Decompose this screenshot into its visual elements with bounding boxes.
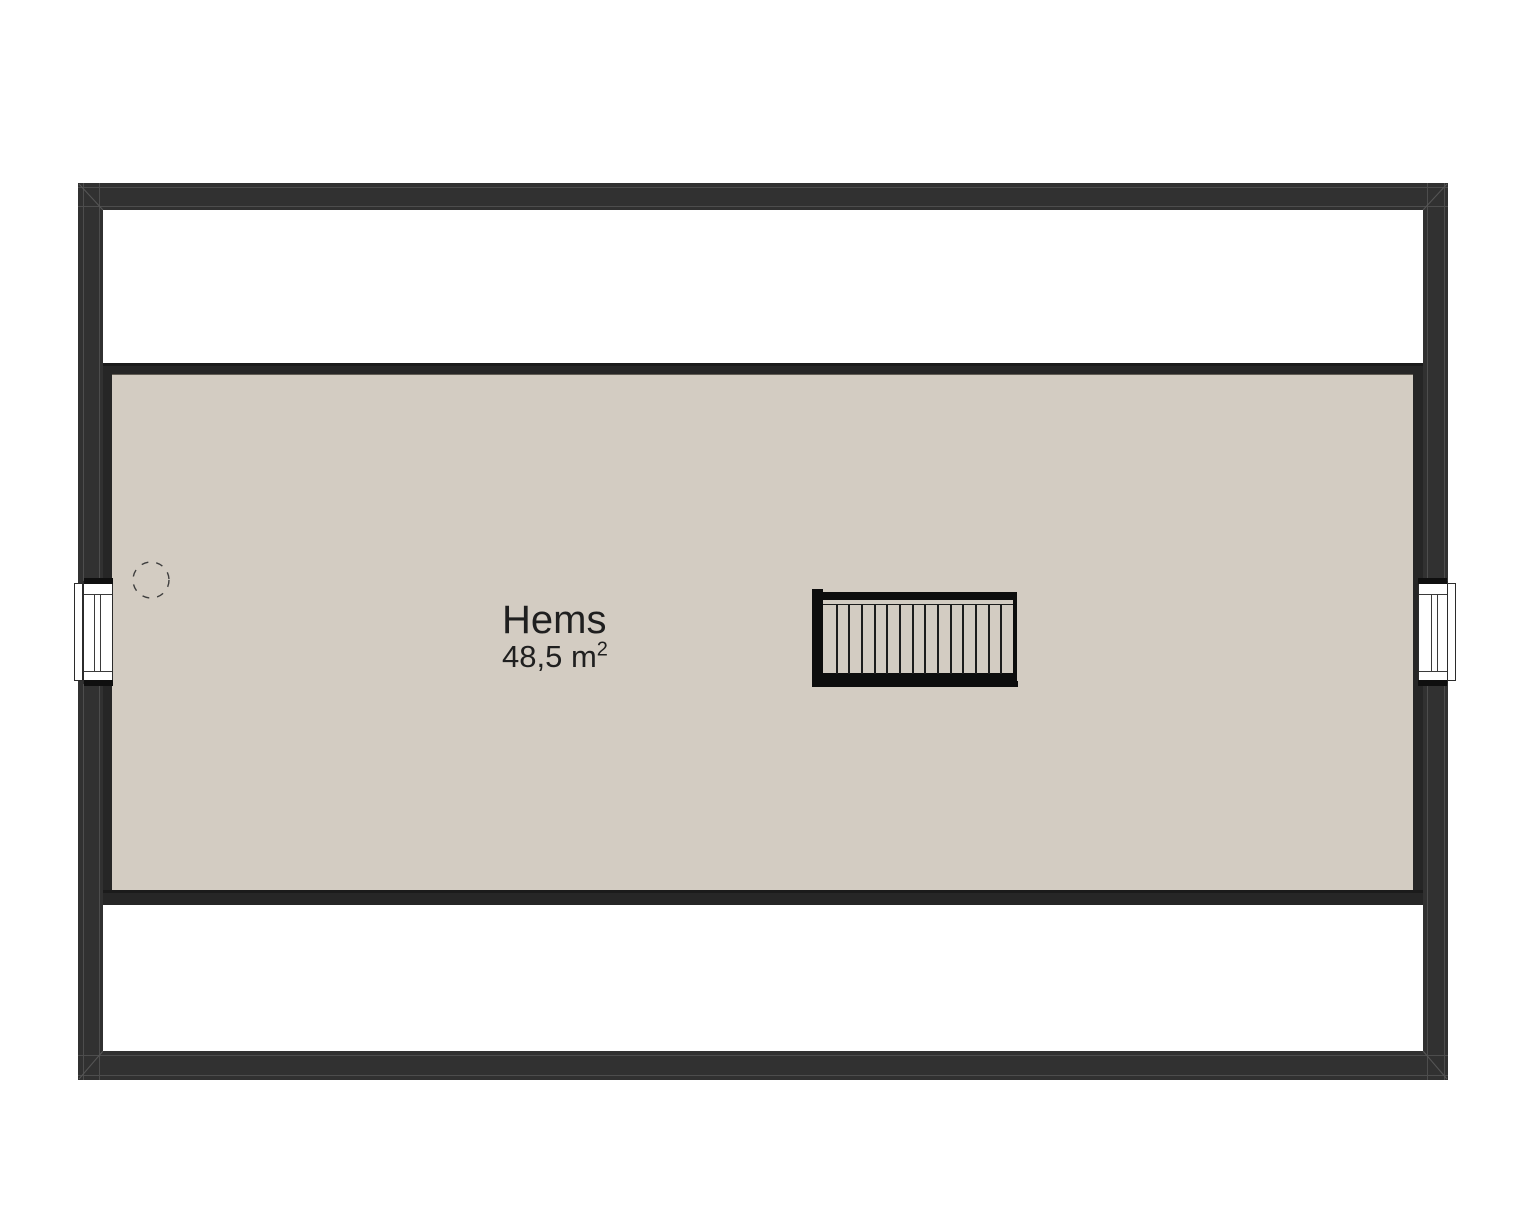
room-area-value: 48,5 m [502,639,597,674]
stair-tread [950,604,952,674]
window-right-cap-top [1418,578,1447,584]
stair-edge-bottom-outer [812,681,1018,687]
stair-tread [886,604,888,674]
stair-tread [874,604,876,674]
window-left-muntin [100,594,101,672]
window-left-muntin [84,671,112,672]
window-left-muntin [84,594,112,595]
wall-seam [78,187,1448,188]
stair-tread [848,604,850,674]
stair-edge-left [812,589,823,687]
window-right-muntin [1419,594,1447,595]
stair-edge-bottom [820,673,1017,681]
window-right-muntin [1431,594,1432,672]
room-floor [112,375,1413,890]
knee-wall-top-edge [103,363,1423,366]
stair-tread [937,604,939,674]
stair-tread [924,604,926,674]
floor-top-highlight [112,374,1413,375]
stair-tread [1000,604,1002,674]
stair-tread [975,604,977,674]
floor-plan-canvas: Hems 48,5 m2 [0,0,1520,1211]
window-left-frame [83,581,113,684]
stair-tread [836,604,838,674]
stair-tread [962,604,964,674]
window-left-sill [74,583,83,681]
window-right-sill [1447,583,1456,681]
stair-tread [899,604,901,674]
room-area-exponent: 2 [597,639,608,661]
stair-stringer-line [823,604,1013,605]
wall-seam [78,206,1448,207]
eaves-space-bottom [103,905,1423,1051]
window-left-cap-top [84,578,113,584]
room-area-label: 48,5 m2 [502,641,608,674]
window-right-cap-bottom [1418,680,1447,686]
stair-edge-right [1013,592,1017,687]
wall-seam [78,1075,1448,1076]
room-name-label: Hems [502,599,606,641]
window-right-muntin [1437,594,1438,672]
stair-tread [912,604,914,674]
window-left-cap-bottom [84,680,113,686]
window-right-muntin [1419,671,1447,672]
stair-tread [988,604,990,674]
stair-tread [861,604,863,674]
window-left-muntin [94,594,95,672]
knee-wall-bottom-edge [103,890,1423,893]
window-right-frame [1418,581,1448,684]
wall-seam [78,1055,1448,1056]
stair-edge-top [815,592,1017,600]
eaves-space-top [103,210,1423,363]
